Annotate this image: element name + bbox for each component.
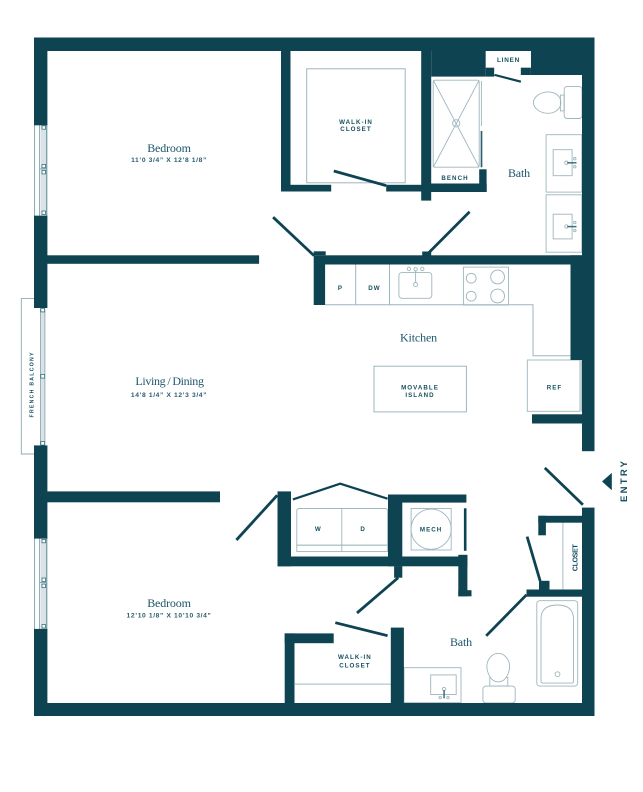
svg-text:Kitchen: Kitchen — [400, 330, 437, 344]
svg-text:12’10 1/8” X 10’10 3/4”: 12’10 1/8” X 10’10 3/4” — [127, 612, 212, 619]
svg-text:CLOSET: CLOSET — [339, 662, 370, 669]
svg-text:WALK-IN: WALK-IN — [338, 654, 372, 661]
svg-text:MECH: MECH — [420, 526, 442, 533]
svg-text:FRENCH BALCONY: FRENCH BALCONY — [30, 352, 36, 418]
svg-text:W: W — [315, 526, 322, 533]
svg-text:Living / Dining: Living / Dining — [135, 374, 204, 388]
svg-text:CLOSET: CLOSET — [340, 126, 371, 133]
svg-text:MOVABLE: MOVABLE — [401, 385, 439, 392]
svg-text:ISLAND: ISLAND — [405, 392, 434, 399]
svg-text:D: D — [360, 526, 366, 533]
svg-text:11’0 3/4” X 12’8 1/8”: 11’0 3/4” X 12’8 1/8” — [131, 157, 207, 164]
svg-text:ENTRY: ENTRY — [619, 460, 630, 502]
svg-text:Bath: Bath — [450, 635, 472, 649]
svg-text:LINEN: LINEN — [497, 57, 520, 64]
svg-text:Bath: Bath — [508, 166, 530, 180]
svg-text:Bedroom: Bedroom — [147, 596, 191, 610]
svg-text:14’8 1/4” X 12’3 3/4”: 14’8 1/4” X 12’3 3/4” — [131, 392, 207, 399]
svg-text:BENCH: BENCH — [441, 175, 468, 182]
svg-text:REF: REF — [547, 385, 563, 392]
svg-text:Bedroom: Bedroom — [147, 141, 191, 155]
svg-text:P: P — [338, 285, 343, 292]
svg-text:WALK-IN: WALK-IN — [339, 119, 373, 126]
svg-text:DW: DW — [368, 285, 380, 292]
svg-text:CLOSET: CLOSET — [571, 544, 580, 572]
